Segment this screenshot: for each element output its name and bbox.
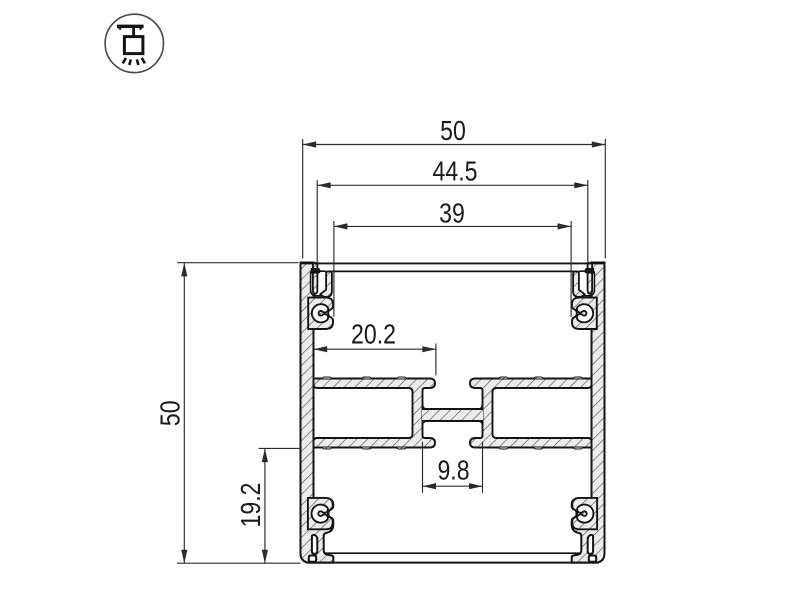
svg-text:44.5: 44.5 (433, 157, 478, 187)
svg-text:39: 39 (439, 198, 465, 228)
svg-text:20.2: 20.2 (351, 320, 396, 350)
svg-text:50: 50 (440, 116, 466, 146)
svg-text:19.2: 19.2 (236, 483, 266, 528)
svg-text:9.8: 9.8 (437, 456, 469, 486)
svg-text:50: 50 (156, 400, 186, 426)
